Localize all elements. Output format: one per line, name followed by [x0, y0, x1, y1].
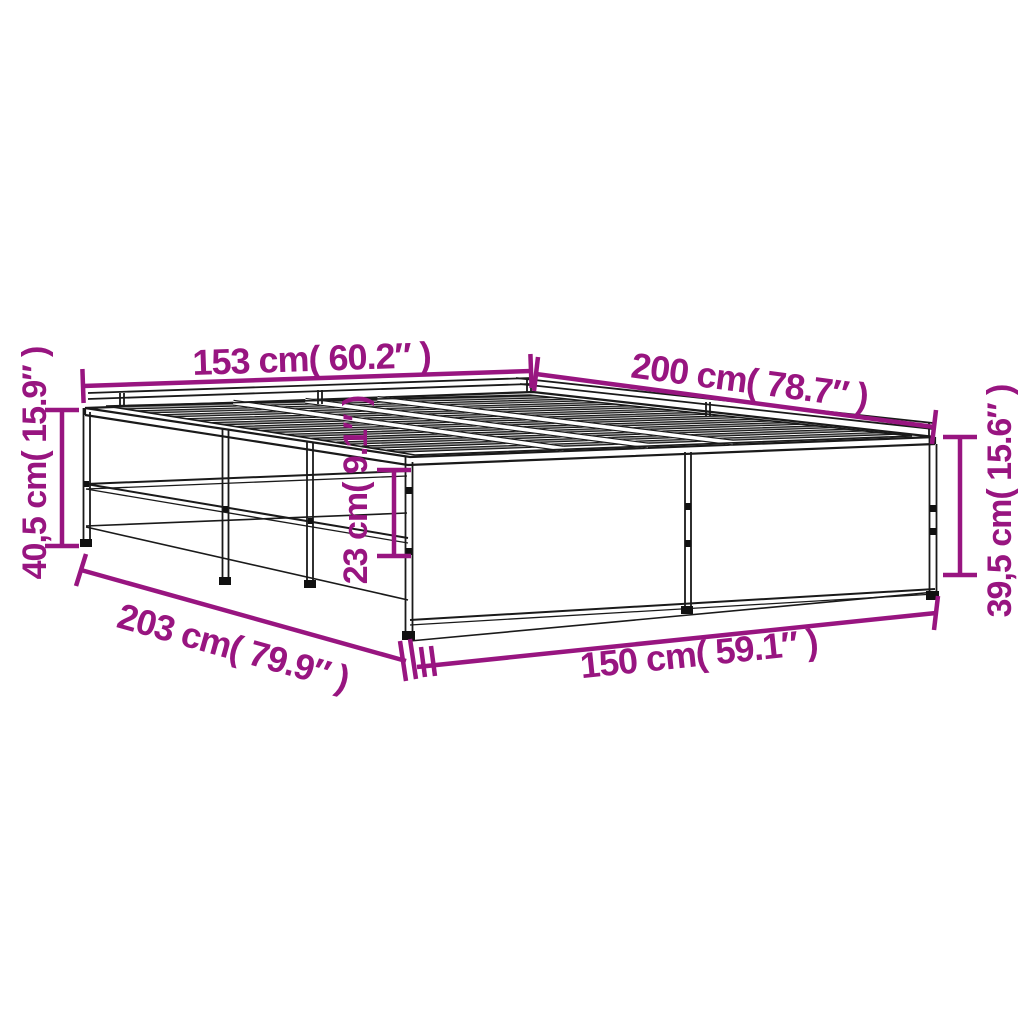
product-diagram-canvas: 153 cm( 60.2″ ) 200 cm( 78.7″ ) 40,5 cm(… [0, 0, 1024, 1024]
label-foot-width: 150 cm( 59.1″ ) [578, 621, 819, 686]
bed-frame [80, 378, 939, 641]
label-head-width: 153 cm( 60.2″ ) [192, 334, 432, 383]
label-rail-height: 23 cm( 9.1″ ) [337, 396, 375, 585]
label-height-right: 39,5 cm( 15.6″ ) [981, 385, 1019, 618]
foot-panel [410, 441, 935, 641]
bed-frame-diagram: 153 cm( 60.2″ ) 200 cm( 78.7″ ) 40,5 cm(… [0, 0, 1024, 1024]
dim-height-right [943, 437, 977, 575]
label-height-left: 40,5 cm( 15.9″ ) [16, 347, 54, 580]
